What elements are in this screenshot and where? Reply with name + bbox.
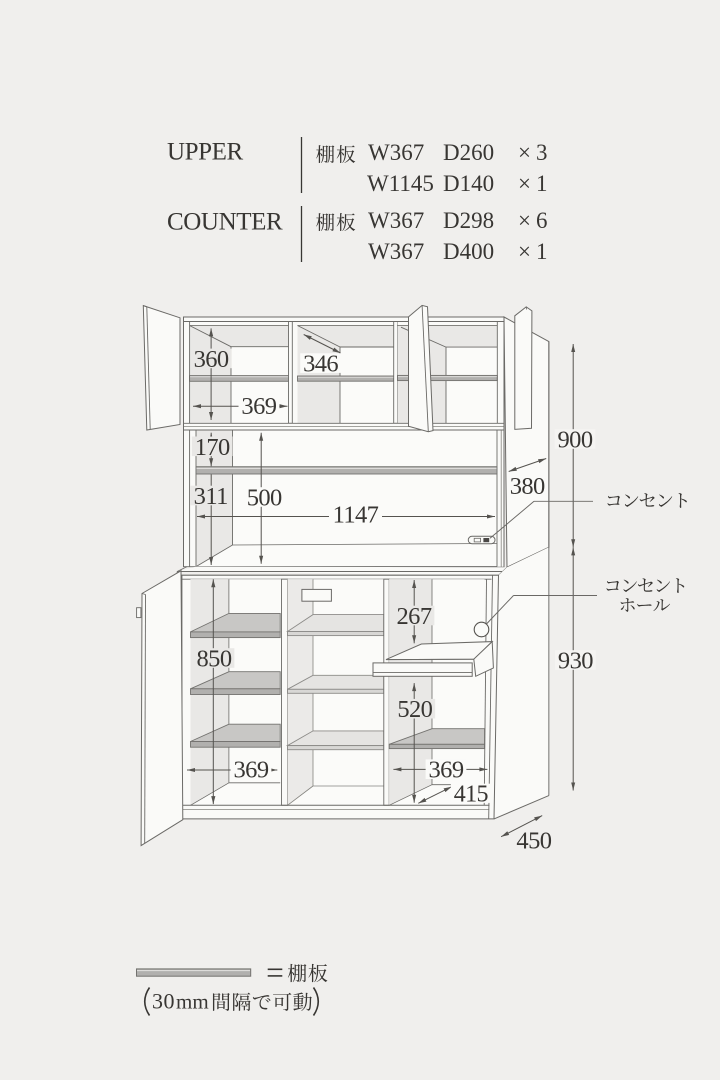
svg-text:W367: W367	[368, 208, 424, 233]
svg-text:267: 267	[397, 603, 432, 630]
svg-text:380: 380	[510, 473, 545, 500]
svg-text:×1: ×1	[518, 239, 552, 264]
svg-text:UPPER: UPPER	[167, 139, 244, 166]
svg-text:360: 360	[194, 346, 229, 373]
svg-text:×6: ×6	[518, 208, 552, 233]
svg-text:369: 369	[241, 393, 276, 420]
svg-text:COUNTER: COUNTER	[167, 209, 283, 236]
svg-text:369: 369	[429, 757, 464, 784]
svg-text:D298: D298	[443, 208, 494, 233]
svg-text:D400: D400	[443, 239, 494, 264]
svg-text:850: 850	[197, 645, 232, 672]
svg-text:900: 900	[558, 426, 593, 453]
svg-text:346: 346	[303, 351, 338, 378]
svg-text:W1145: W1145	[367, 171, 434, 196]
svg-text:930: 930	[558, 647, 593, 674]
svg-text:1147: 1147	[333, 501, 379, 528]
svg-text:×1: ×1	[518, 171, 552, 196]
svg-text:170: 170	[195, 434, 230, 461]
svg-text:×3: ×3	[518, 140, 552, 165]
svg-text:520: 520	[397, 696, 432, 723]
svg-text:30: 30	[152, 989, 175, 1014]
svg-text:W367: W367	[368, 239, 424, 264]
svg-text:D260: D260	[443, 140, 494, 165]
svg-text:mm: mm	[176, 990, 209, 1014]
svg-text:311: 311	[194, 483, 228, 510]
svg-text:W367: W367	[368, 140, 424, 165]
svg-text:500: 500	[247, 484, 282, 511]
svg-text:D140: D140	[443, 171, 494, 196]
svg-text:369: 369	[234, 756, 269, 783]
svg-text:450: 450	[516, 827, 551, 854]
svg-text:415: 415	[454, 782, 489, 808]
